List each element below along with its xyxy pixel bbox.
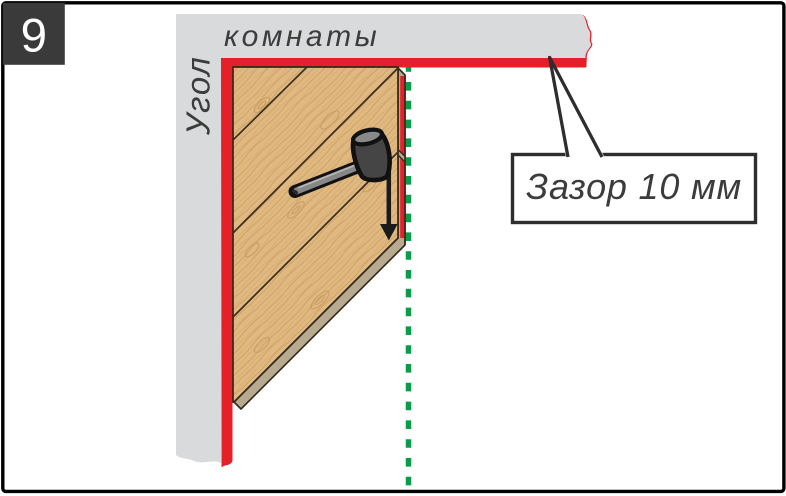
svg-text:комнаты: комнаты <box>224 20 380 53</box>
svg-text:9: 9 <box>21 10 47 63</box>
svg-text:Зазор 10 мм: Зазор 10 мм <box>526 166 742 207</box>
svg-text:Угол: Угол <box>180 55 217 136</box>
